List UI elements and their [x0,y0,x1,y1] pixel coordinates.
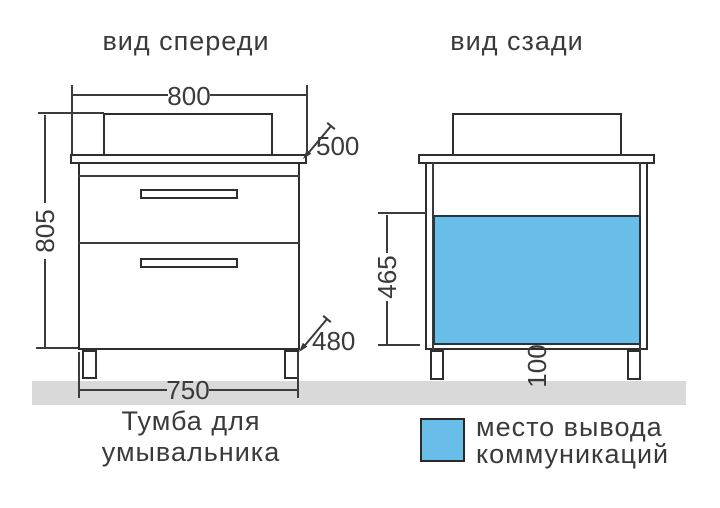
dim-805-line-top [44,115,46,203]
dim-750-ext-right [297,352,299,398]
cabinet-leg-back-left [430,350,444,380]
dim-465-ext-top [378,212,426,214]
dim-805-ext-top [38,112,104,114]
legend-label-line-1: место вывода [476,414,663,441]
dim-465-line-top [386,215,388,253]
dim-465-line-bottom [386,301,388,345]
dim-750-line-left [79,389,167,391]
drawer-handle-top [140,189,238,199]
dim-800-line-right [210,94,307,96]
dim-500-label: 500 [316,133,359,159]
dim-750-line-right [209,389,298,391]
back-view-title: вид сзади [417,27,617,55]
dim-100-label: 100 [524,338,550,394]
communications-area [433,215,641,345]
dim-750-label: 750 [158,377,218,403]
legend-swatch [420,418,465,462]
legend-label-line-2: коммуникаций [476,441,669,468]
cabinet-leg-back-right [627,350,641,380]
caption-line-1: Тумба для [66,406,316,437]
washbasin-front [103,113,273,156]
caption-line-2: умывальника [66,437,316,468]
dim-805-line-bottom [44,259,46,348]
dim-805-ext-bottom [36,347,79,349]
dim-465-ext-bottom [378,344,420,346]
technical-drawing: вид спереди 800 805 500 480 750 Тумба дл… [0,0,720,508]
cabinet-leg-front-left [82,350,97,379]
dim-800-line-left [72,94,168,96]
washbasin-back [452,113,622,156]
drawer-divider [78,242,300,244]
drawer-handle-bottom [140,258,238,268]
dim-805-label: 805 [32,203,58,259]
dim-465-label: 465 [374,249,400,305]
floor-strip [32,381,686,405]
dim-800-ext-left [71,85,73,155]
dim-480-label: 480 [312,328,355,354]
dim-750-ext-left [78,352,80,398]
front-view-title: вид спереди [86,27,286,55]
cabinet-top-rail [78,175,300,177]
dim-800-label: 800 [159,83,219,109]
